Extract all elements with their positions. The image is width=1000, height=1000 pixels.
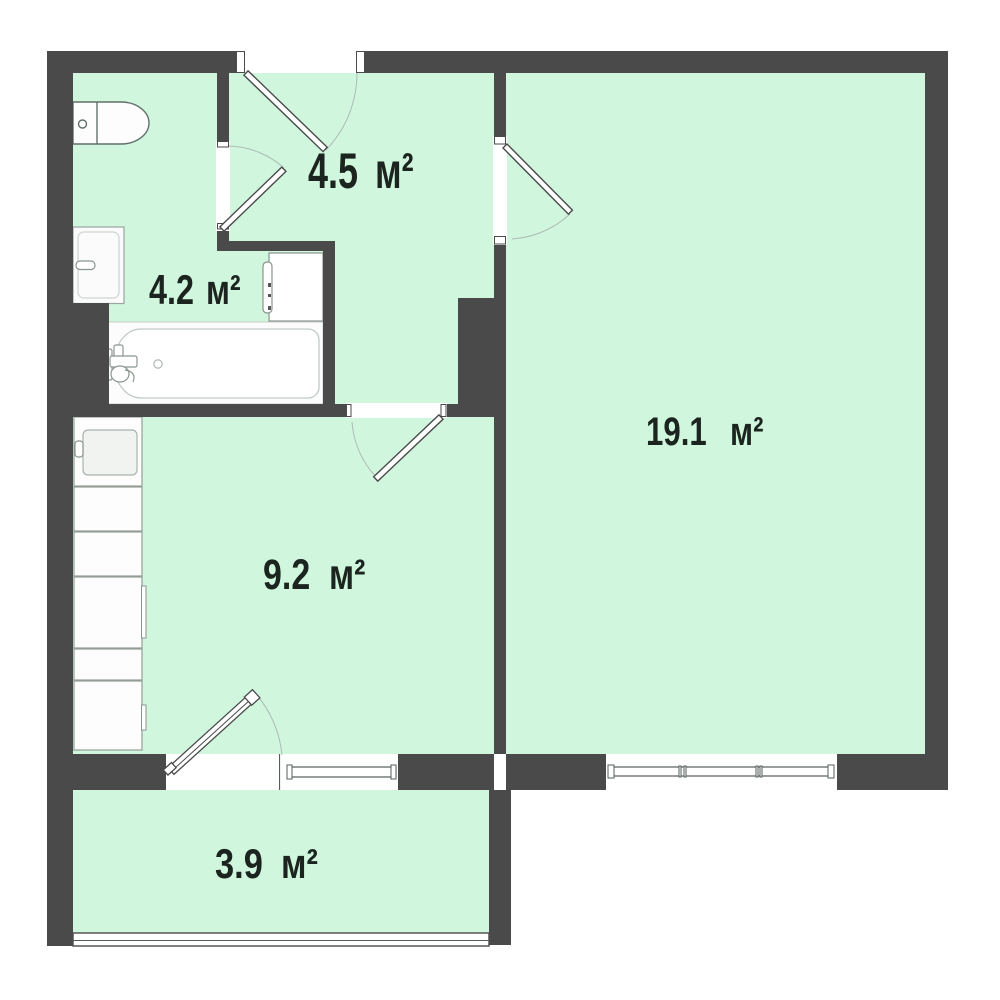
svg-text:19.1: 19.1 bbox=[646, 409, 707, 454]
svg-text:м²: м² bbox=[730, 409, 764, 454]
svg-text:4.2: 4.2 bbox=[149, 266, 194, 313]
svg-text:м²: м² bbox=[375, 144, 414, 199]
svg-text:м²: м² bbox=[329, 551, 366, 599]
svg-text:м²: м² bbox=[206, 266, 241, 313]
svg-text:4.5: 4.5 bbox=[308, 144, 358, 199]
svg-text:9.2: 9.2 bbox=[263, 551, 310, 599]
svg-text:м²: м² bbox=[281, 841, 318, 888]
svg-text:3.9: 3.9 bbox=[215, 841, 263, 888]
